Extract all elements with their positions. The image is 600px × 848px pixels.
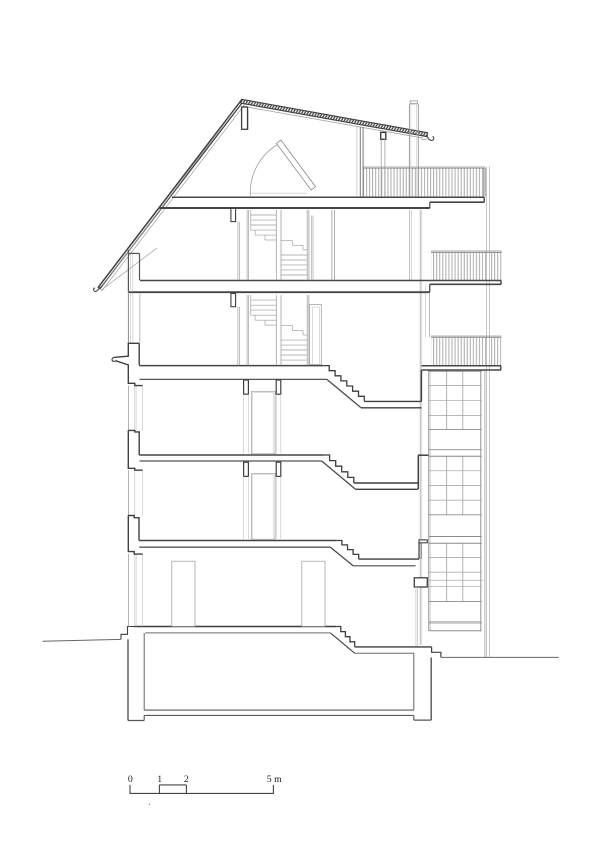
svg-text:5 m: 5 m [267,774,282,785]
svg-text:0: 0 [128,774,133,785]
svg-text:1: 1 [157,774,162,785]
svg-text:2: 2 [184,774,189,785]
